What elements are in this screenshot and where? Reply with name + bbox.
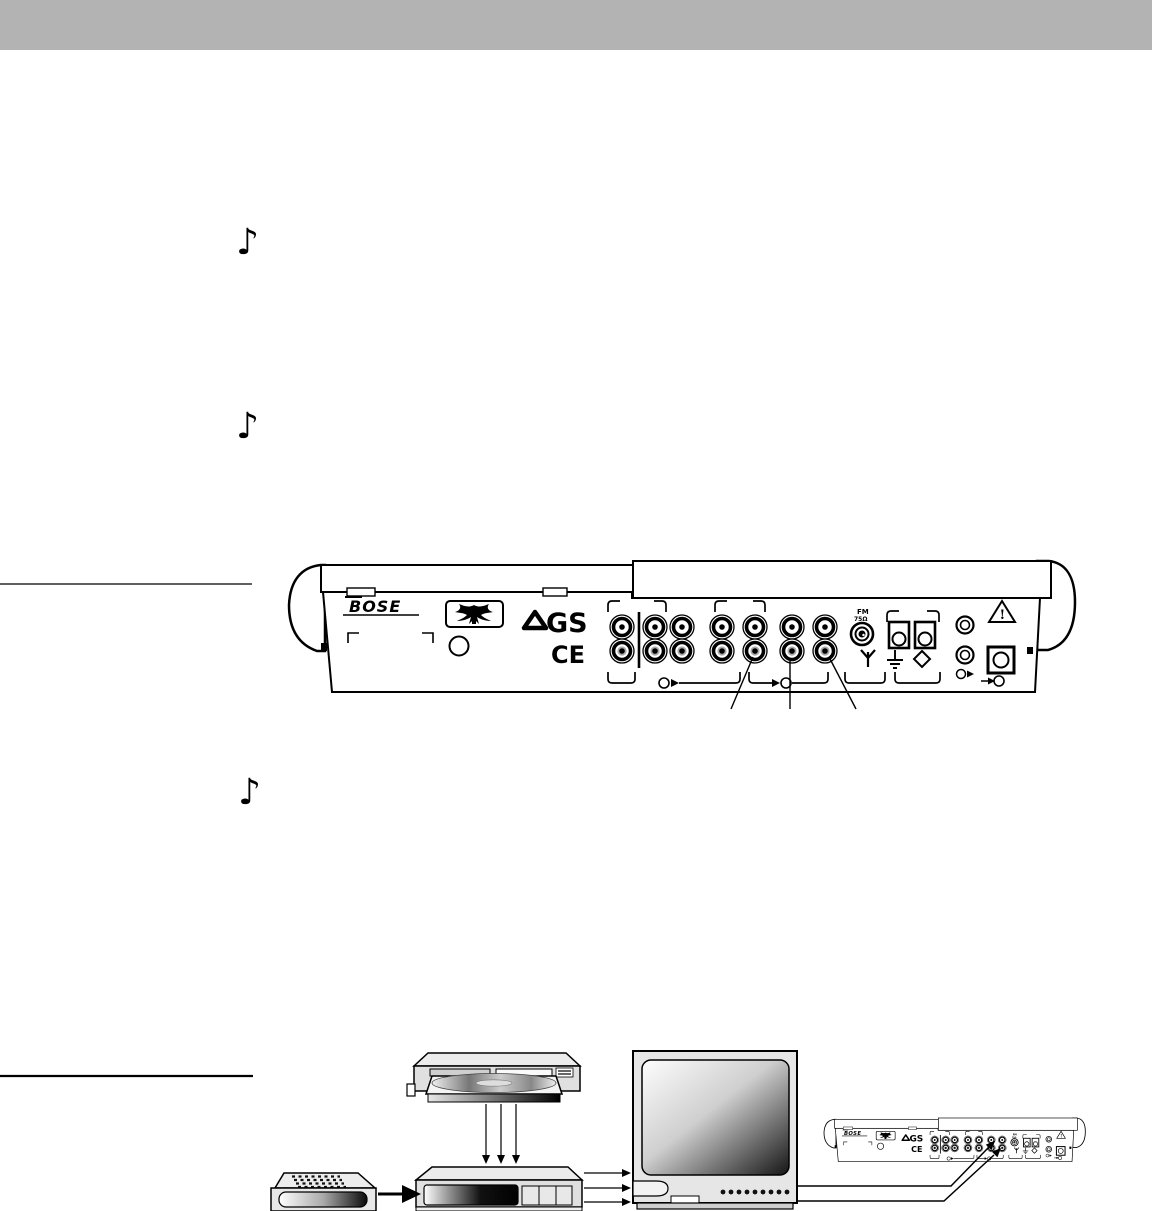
arrow-head-icon (622, 1184, 631, 1192)
margin-music-notes: ♪ ♪ ♪ (236, 222, 261, 813)
tv-screen (642, 1060, 789, 1175)
tv-icon (633, 1051, 797, 1209)
music-note-icon: ♪ (238, 772, 261, 813)
vcr-display-window (424, 1185, 518, 1205)
vcr-top-face (416, 1167, 582, 1180)
disc-hub (476, 1080, 512, 1086)
tv-base (637, 1203, 793, 1209)
vcr-base (416, 1207, 582, 1211)
cable-line (797, 1155, 994, 1201)
tv-speaker-dots (721, 1190, 790, 1195)
remote-top-face (275, 1173, 375, 1188)
remote-control-icon (271, 1173, 376, 1211)
remote-lens-bar (279, 1192, 367, 1207)
vcr-buttons (522, 1186, 572, 1205)
tv-label-plate (671, 1196, 699, 1203)
music-note-icon: ♪ (236, 222, 259, 263)
connection-arrows-right (584, 1169, 631, 1206)
disc-tray-lip (428, 1094, 560, 1102)
connection-arrows-down (482, 1104, 520, 1164)
arrow-head-icon (482, 1155, 490, 1164)
cd-player-base-step (407, 1084, 415, 1096)
hookup-diagram (271, 1051, 1085, 1211)
cd-player-top-face (414, 1053, 580, 1066)
rear-panel-diagram (289, 561, 1075, 709)
arrow-head-icon (622, 1169, 631, 1177)
arrow-head-icon (497, 1155, 505, 1164)
arrow-head-icon (512, 1155, 520, 1164)
cd-player-vent (556, 1068, 573, 1077)
media-center-mini-icon (824, 1118, 1085, 1162)
music-note-icon: ♪ (236, 406, 259, 447)
manual-page-artwork: BOSE GS CE (0, 0, 1152, 1211)
tv-control-flap (633, 1181, 668, 1196)
arrow-head-icon (622, 1198, 631, 1206)
cd-dvd-player-icon (407, 1053, 580, 1102)
vcr-icon (416, 1167, 582, 1211)
